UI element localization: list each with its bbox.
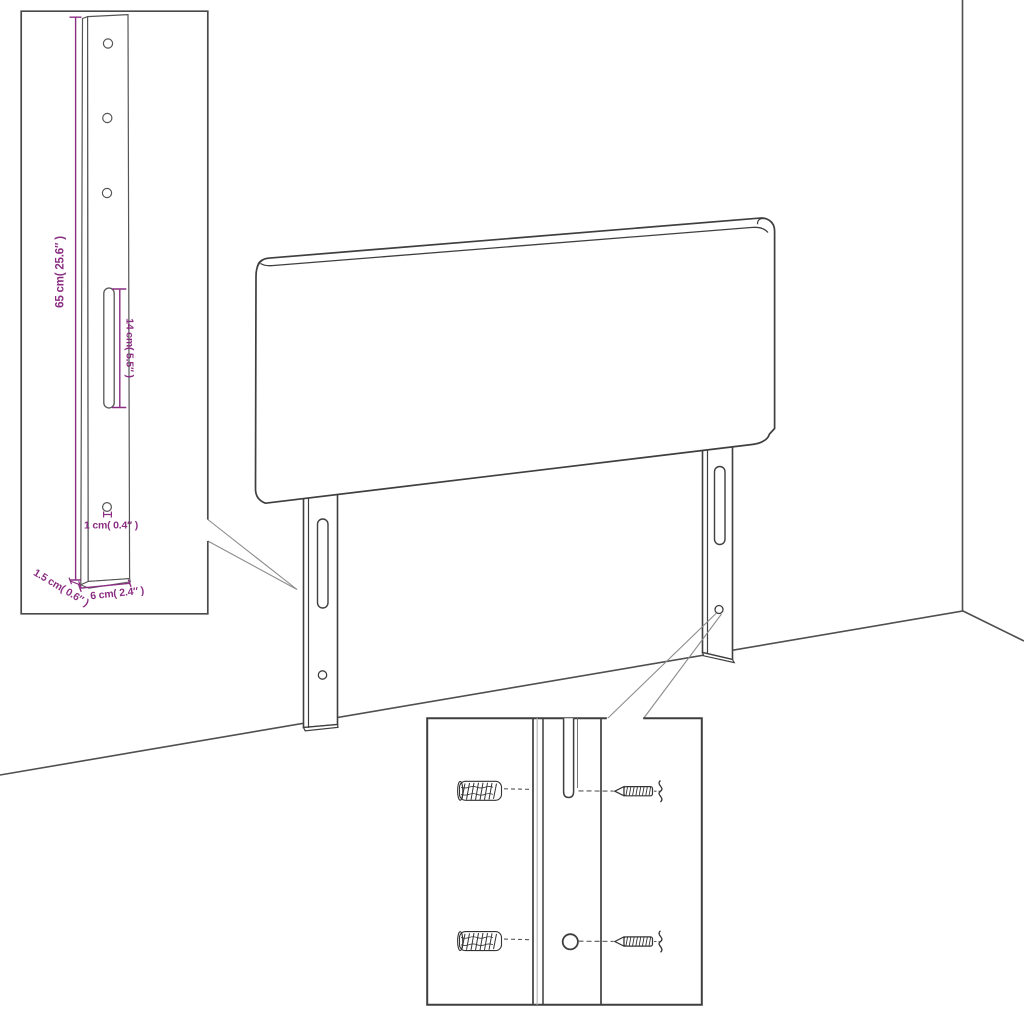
diagram-canvas: 65 cm( 25.6″ ) 14 cm( 5.5″ ) 1 cm( 0.4″ … bbox=[0, 0, 1024, 1024]
left-leg-hole bbox=[318, 671, 326, 679]
bracket-callout-lines bbox=[208, 520, 297, 590]
label-slot-length: 14 cm( 5.5″ ) bbox=[124, 318, 136, 378]
right-leg-slot bbox=[715, 467, 726, 545]
label-width: 6 cm( 2.4″ ) bbox=[90, 585, 145, 603]
bracket-hole-4 bbox=[103, 503, 112, 512]
headboard-panel bbox=[256, 218, 775, 503]
label-hole-diameter: 1 cm( 0.4″ ) bbox=[84, 520, 138, 532]
headboard-left-leg bbox=[304, 478, 339, 731]
bracket-detail-inset: 65 cm( 25.6″ ) 14 cm( 5.5″ ) 1 cm( 0.4″ … bbox=[21, 11, 208, 614]
mounting-slot-icon bbox=[564, 718, 574, 797]
dim-height-line bbox=[70, 17, 82, 580]
bracket-slot bbox=[104, 288, 114, 408]
wall-anchor-icon bbox=[458, 781, 502, 800]
bracket-hole-1 bbox=[103, 39, 112, 48]
headboard-right-leg bbox=[703, 436, 735, 663]
bracket-hole-3 bbox=[102, 188, 111, 197]
mounting-hole-icon bbox=[563, 934, 578, 949]
bracket-side-face bbox=[81, 17, 88, 585]
bracket-hole-2 bbox=[103, 113, 112, 122]
left-leg-slot bbox=[318, 519, 329, 608]
right-leg-hole bbox=[715, 606, 723, 614]
label-bracket-height: 65 cm( 25.6″ ) bbox=[55, 236, 67, 308]
hardware-detail-inset bbox=[427, 718, 702, 1005]
